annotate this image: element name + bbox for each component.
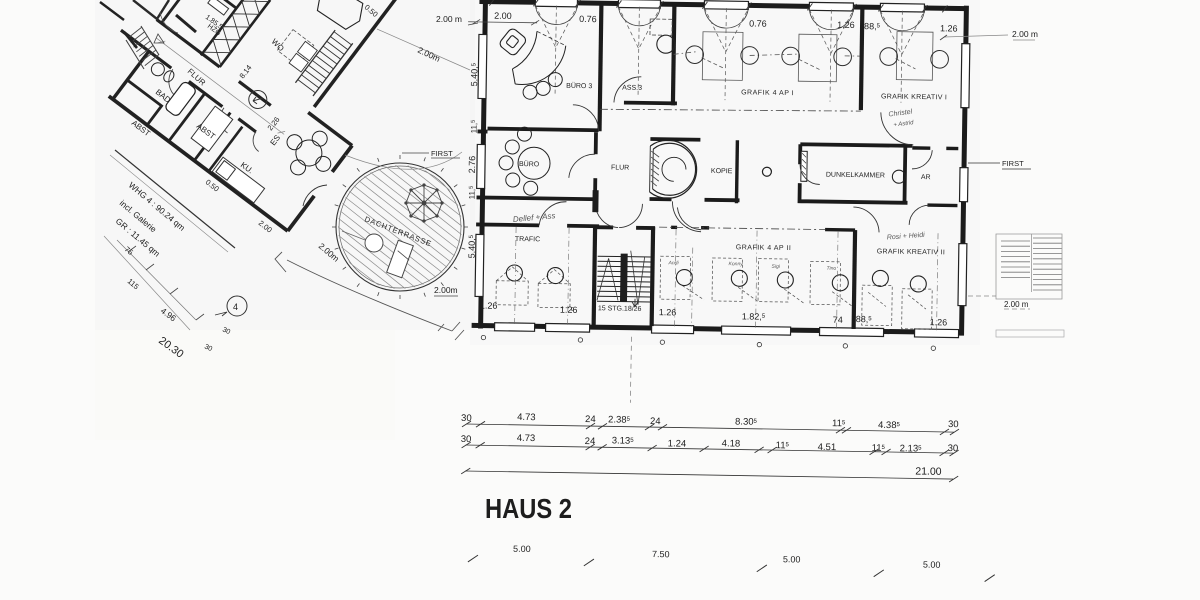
svg-text:15 STG.18/26: 15 STG.18/26 — [598, 305, 642, 313]
svg-text:FIRST: FIRST — [1002, 159, 1024, 168]
svg-text:30: 30 — [461, 434, 472, 445]
svg-text:2.00 m: 2.00 m — [1012, 29, 1038, 39]
svg-text:30: 30 — [461, 413, 472, 424]
svg-text:2.00: 2.00 — [494, 11, 512, 21]
svg-text:24: 24 — [585, 414, 596, 425]
svg-text:2.76: 2.76 — [467, 156, 477, 174]
svg-text:5.00: 5.00 — [513, 544, 531, 554]
svg-text:30: 30 — [948, 419, 959, 430]
svg-text:4.73: 4.73 — [517, 433, 536, 444]
svg-text:TRAFIC: TRAFIC — [515, 236, 540, 243]
svg-text:5.00: 5.00 — [923, 560, 941, 570]
svg-text:BÜRO: BÜRO — [519, 160, 540, 168]
svg-text:GRAFIK 4 AP I: GRAFIK 4 AP I — [741, 89, 794, 97]
svg-text:FIRST: FIRST — [431, 149, 453, 158]
svg-text:24: 24 — [585, 436, 596, 447]
svg-text:KOPIE: KOPIE — [711, 168, 733, 175]
svg-text:1.26: 1.26 — [659, 307, 677, 317]
svg-text:0.76: 0.76 — [749, 18, 767, 28]
svg-text:1.26: 1.26 — [940, 23, 958, 33]
svg-text:30: 30 — [948, 443, 959, 454]
svg-text:1.26: 1.26 — [480, 300, 498, 310]
svg-text:5.00: 5.00 — [783, 554, 801, 564]
svg-text:GRAFIK 4 AP II: GRAFIK 4 AP II — [736, 244, 792, 252]
svg-text:1.2ͨ6: 1.2ͨ6 — [560, 305, 578, 315]
svg-text:Andi: Andi — [668, 260, 680, 266]
svg-text:GRAFIK KREATIV I: GRAFIK KREATIV I — [881, 93, 947, 101]
svg-text:AR: AR — [921, 174, 931, 181]
svg-text:FLUR: FLUR — [611, 164, 629, 171]
svg-text:1.24: 1.24 — [668, 438, 687, 449]
svg-text:HAUS 2: HAUS 2 — [485, 493, 572, 524]
svg-text:4: 4 — [233, 302, 238, 312]
svg-text:2.00m: 2.00m — [434, 285, 458, 295]
svg-text:2.00 m: 2.00 m — [436, 14, 462, 24]
svg-text:Sigi: Sigi — [771, 264, 780, 270]
svg-text:DUNKELKAMMER: DUNKELKAMMER — [826, 172, 885, 180]
svg-text:Konny: Konny — [729, 261, 744, 267]
svg-text:4.73: 4.73 — [517, 412, 536, 423]
svg-text:74: 74 — [833, 315, 843, 325]
svg-text:24: 24 — [650, 416, 661, 427]
svg-text:GRAFIK KREATIV II: GRAFIK KREATIV II — [877, 248, 945, 256]
svg-text:7.50: 7.50 — [652, 549, 670, 559]
svg-text:2.00 m: 2.00 m — [1004, 300, 1029, 309]
svg-text:0.76: 0.76 — [579, 14, 597, 24]
svg-text:1.26: 1.26 — [837, 20, 855, 30]
svg-text:1.26: 1.26 — [930, 317, 948, 327]
svg-text:Tino: Tino — [826, 266, 836, 272]
svg-text:ASS.3: ASS.3 — [622, 85, 642, 92]
svg-text:21.00: 21.00 — [915, 465, 942, 477]
svg-text:4.51: 4.51 — [818, 442, 837, 453]
svg-text:BÜRO 3: BÜRO 3 — [566, 82, 592, 90]
svg-text:4.18: 4.18 — [722, 438, 741, 449]
